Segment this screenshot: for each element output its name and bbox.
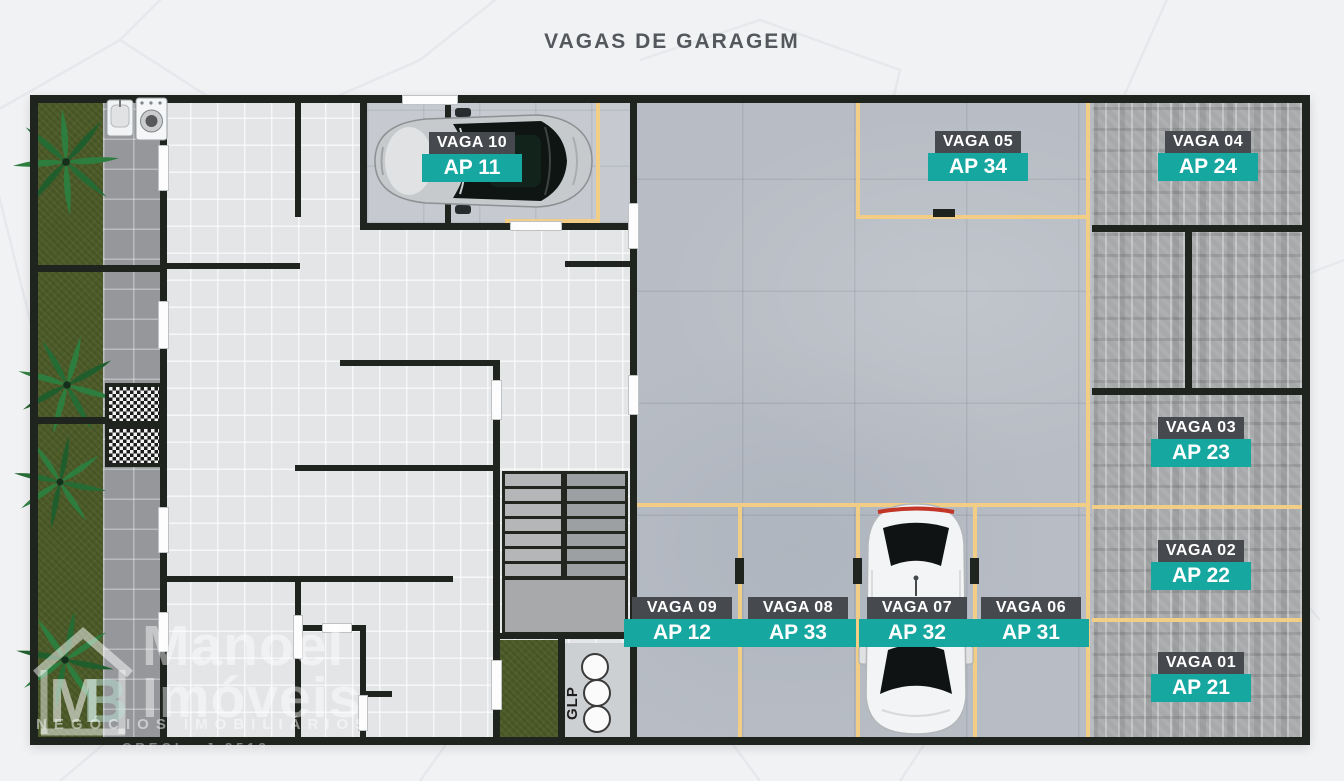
vaga-number: VAGA 03	[1158, 417, 1244, 439]
apartment-number: AP 11	[422, 154, 522, 182]
parking-label-vaga-09: VAGA 09 AP 12	[624, 597, 740, 647]
vaga-number: VAGA 02	[1158, 540, 1244, 562]
parking-line	[1092, 618, 1302, 622]
apartment-number: AP 34	[928, 153, 1028, 181]
door-opening	[628, 375, 639, 415]
stairs-flight-right	[564, 471, 628, 579]
apartment-number: AP 23	[1151, 439, 1251, 467]
apartment-number: AP 24	[1158, 153, 1258, 181]
parking-label-vaga-07: VAGA 07 AP 32	[859, 597, 975, 647]
parking-label-vaga-10: VAGA 10 AP 11	[422, 132, 522, 182]
parking-line	[856, 215, 1090, 219]
apartment-number: AP 31	[973, 619, 1089, 647]
wall	[30, 265, 163, 272]
vaga-number: VAGA 08	[748, 597, 848, 619]
parking-label-vaga-08: VAGA 08 AP 33	[740, 597, 856, 647]
parking-label-vaga-04: VAGA 04 AP 24	[1158, 131, 1258, 181]
window	[510, 221, 562, 231]
palm-tree-icon	[10, 605, 120, 715]
page-title: VAGAS DE GARAGEM	[0, 30, 1344, 54]
apartment-number: AP 12	[624, 619, 740, 647]
parking-line	[1092, 505, 1302, 509]
wall-stub	[735, 558, 744, 584]
vaga-number: VAGA 10	[429, 132, 515, 154]
stairs-landing	[502, 577, 628, 635]
window	[491, 660, 502, 710]
window	[158, 145, 169, 191]
wall	[565, 261, 635, 267]
palm-tree-icon	[8, 430, 112, 534]
vaga-number: VAGA 01	[1158, 652, 1244, 674]
floor-plan: GLP VAGA 10	[30, 95, 1310, 745]
wall	[340, 360, 498, 366]
wall	[163, 576, 453, 582]
gas-cylinder-icon	[581, 653, 609, 681]
wall	[295, 95, 301, 217]
door-opening	[491, 380, 502, 420]
window	[402, 95, 458, 105]
wall	[360, 223, 637, 230]
wall	[1185, 228, 1192, 392]
apartment-number: AP 22	[1151, 562, 1251, 590]
apartment-number: AP 33	[740, 619, 856, 647]
laundry-area	[106, 97, 168, 141]
gas-cylinder-icon	[583, 679, 611, 707]
vaga-number: VAGA 04	[1165, 131, 1251, 153]
apartment-number: AP 21	[1151, 674, 1251, 702]
vaga-number: VAGA 09	[632, 597, 732, 619]
gas-cylinder-icon	[583, 705, 611, 733]
wall	[1092, 225, 1305, 232]
window	[158, 507, 169, 553]
small-garden-patch	[500, 640, 560, 740]
ventilation-shaft	[105, 383, 163, 425]
wall	[1092, 388, 1305, 395]
vaga-number: VAGA 07	[867, 597, 967, 619]
vaga-number: VAGA 05	[935, 131, 1021, 153]
apartment-number: AP 32	[859, 619, 975, 647]
wall-stub	[933, 209, 955, 217]
wall	[295, 465, 500, 471]
wall	[360, 95, 367, 223]
page: VAGAS DE GARAGEM	[0, 0, 1344, 781]
parking-line	[856, 100, 860, 219]
glp-label: GLP	[564, 668, 581, 720]
window	[158, 612, 169, 652]
window	[158, 301, 169, 349]
stairs-flight-left	[502, 471, 564, 579]
door-opening	[358, 695, 368, 731]
wall	[30, 417, 108, 424]
parking-label-vaga-02: VAGA 02 AP 22	[1151, 540, 1251, 590]
parking-label-vaga-03: VAGA 03 AP 23	[1151, 417, 1251, 467]
parking-label-vaga-01: VAGA 01 AP 21	[1151, 652, 1251, 702]
wall	[160, 263, 300, 269]
door-opening	[322, 623, 352, 633]
door-opening	[293, 615, 303, 659]
vaga-number: VAGA 06	[981, 597, 1081, 619]
parking-label-vaga-05: VAGA 05 AP 34	[928, 131, 1028, 181]
ventilation-shaft	[105, 425, 163, 467]
door-opening	[628, 203, 639, 249]
parking-label-vaga-06: VAGA 06 AP 31	[973, 597, 1089, 647]
